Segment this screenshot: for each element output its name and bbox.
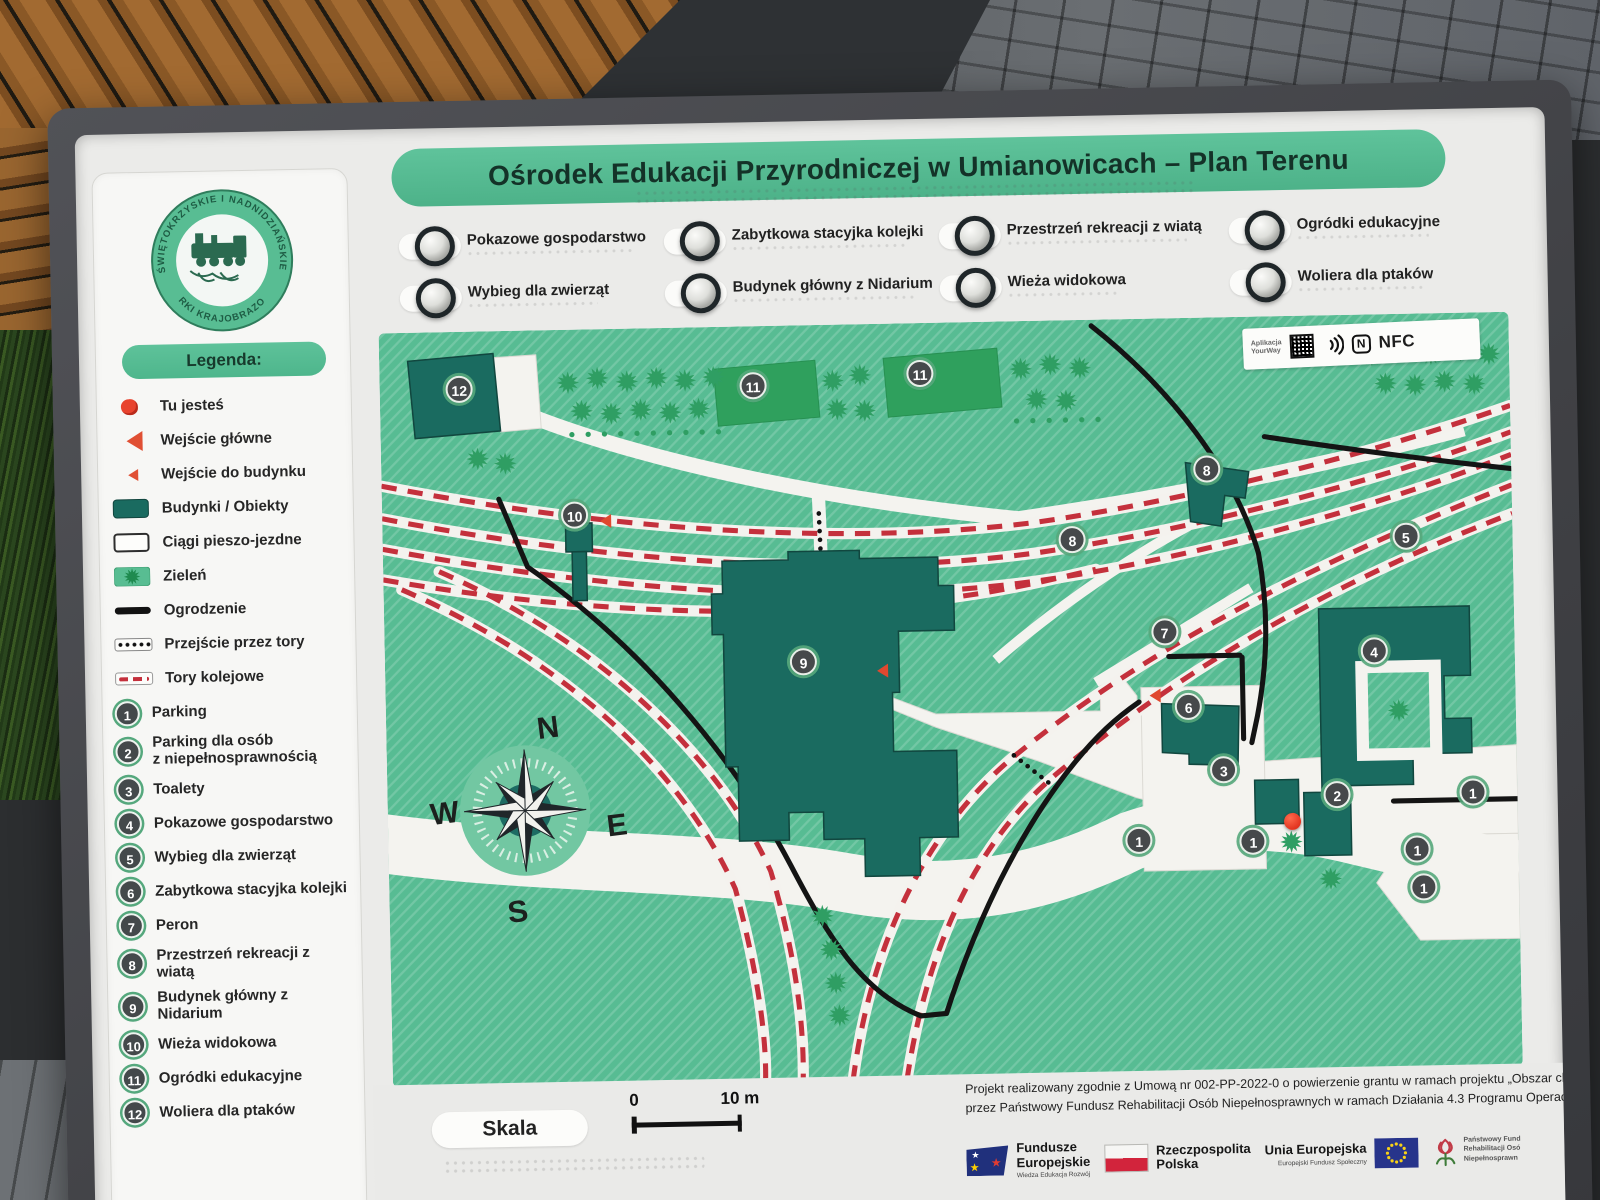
map-marker-10: 10 — [561, 501, 589, 529]
map-marker-8: 8 — [1193, 455, 1221, 483]
legend-item-label: Wejście główne — [160, 429, 272, 448]
audio-play-button[interactable] — [1245, 262, 1286, 303]
legend-panel: ŚWIĘTOKRZYSKIE I NADNIDZIAŃSKIE PARKI KR… — [91, 168, 367, 1200]
audio-item-2: Przestrzeń rekreacji z wiatą — [954, 208, 1245, 260]
legend-item-teal: Budynki / Obiekty — [111, 489, 344, 524]
legend-number-badge: 8 — [119, 951, 144, 976]
map-marker-12: 12 — [445, 375, 473, 403]
dotted-icon — [113, 638, 153, 652]
legend-number-label: Wieża widokowa — [158, 1033, 277, 1053]
audio-button-label: Wieża widokowa — [1007, 271, 1126, 301]
map-marker-11: 11 — [739, 372, 767, 400]
funding-logos: ★★★ FunduszeEuropejskie Wiedza Edukacja … — [966, 1115, 1565, 1196]
legend-number-label: Parking — [152, 703, 207, 721]
audio-item-5: Budynek główny z Nidarium — [680, 265, 956, 316]
audio-button-label: Pokazowe gospodarstwo — [467, 228, 647, 259]
legend-number-label: Toalety — [153, 780, 205, 798]
scale-label: Skala — [431, 1110, 588, 1149]
legend-number-item-10: 10Wieża widokowa — [121, 1028, 353, 1058]
legend-number-badge: 1 — [115, 701, 140, 726]
audio-play-button[interactable] — [414, 226, 455, 267]
legend-number-label: Ogródki edukacyjne — [159, 1067, 303, 1087]
legend-number-label: Wybieg dla zwierząt — [154, 846, 296, 866]
legend-header: Legenda: — [122, 341, 327, 379]
scale-start: 0 — [629, 1091, 639, 1111]
project-description: Projekt realizowany zgodnie z Umową nr 0… — [965, 1068, 1566, 1119]
legend-number-badge: 6 — [118, 879, 143, 904]
audio-button-label: Przestrzeń rekreacji z wiatą — [1006, 218, 1202, 250]
building-entrance-icon — [1143, 688, 1161, 702]
legend-item-red-dash: Tory kolejowe — [114, 659, 347, 694]
site-map: N W E S Aplikacja YourWay — [379, 312, 1523, 1088]
red-dot-icon — [109, 398, 149, 415]
audio-play-button[interactable] — [415, 278, 456, 319]
white-icon — [111, 533, 151, 553]
logo-pfron: Państwowy Fund Rehabilitacji Osó Niepełn… — [1432, 1135, 1521, 1169]
footer: Skala 0 10 m Projekt realizowany zgodnie… — [373, 1063, 1566, 1200]
you-are-here-dot — [1284, 813, 1301, 830]
legend-number-label: Peron — [156, 916, 199, 934]
map-markers: 1211111088597463211111 — [379, 312, 1523, 1088]
legend-item-label: Zieleń — [163, 567, 207, 585]
legend-number-badge: 7 — [119, 913, 144, 938]
map-marker-9: 9 — [790, 648, 818, 676]
map-marker-4: 4 — [1360, 637, 1388, 665]
information-board: ŚWIĘTOKRZYSKIE I NADNIDZIAŃSKIE PARKI KR… — [47, 79, 1593, 1200]
building-entrance-icon — [870, 664, 888, 678]
legend-number-label: Pokazowe gospodarstwo — [154, 811, 334, 832]
audio-button-label: Wybieg dla zwierząt — [468, 281, 610, 312]
legend-number-item-6: 6Zabytkowa stacyjka kolejki — [118, 875, 350, 905]
audio-item-3: Ogródki edukacyjne — [1244, 203, 1495, 254]
scale-bar-line — [632, 1121, 742, 1128]
legend-number-badge: 2 — [115, 739, 140, 764]
legend-item-black-line: Ogrodzenie — [113, 591, 346, 626]
tri-small-icon — [110, 468, 150, 481]
legend-number-label: Woliera dla ptaków — [159, 1101, 295, 1121]
legend-number-badge: 11 — [122, 1066, 147, 1091]
map-marker-11: 11 — [906, 360, 934, 388]
legend-number-item-9: 9Budynek główny z Nidarium — [120, 985, 353, 1024]
audio-item-1: Zabytkowa stacyjka kolejki — [679, 213, 955, 264]
legend-item-green-burst: Zieleń — [112, 557, 345, 592]
audio-buttons: Pokazowe gospodarstwoZabytkowa stacyjka … — [414, 200, 1508, 325]
audio-item-0: Pokazowe gospodarstwo — [414, 219, 680, 270]
map-marker-1: 1 — [1410, 873, 1438, 901]
legend-item-label: Wejście do budynku — [161, 463, 306, 483]
legend-number-badge: 10 — [121, 1032, 146, 1057]
legend-number-item-4: 4Pokazowe gospodarstwo — [117, 807, 349, 837]
map-marker-1: 1 — [1240, 827, 1268, 855]
map-marker-8: 8 — [1059, 526, 1087, 554]
photo-of-information-board: ŚWIĘTOKRZYSKIE I NADNIDZIAŃSKIE PARKI KR… — [0, 0, 1600, 1200]
legend-item-label: Tu jesteś — [160, 396, 224, 414]
legend-number-badge: 4 — [117, 811, 142, 836]
legend-item-label: Tory kolejowe — [165, 668, 264, 687]
audio-play-button[interactable] — [1244, 210, 1285, 251]
logo-unia-europejska: Unia Europejska Europejski Fundusz Społe… — [1265, 1138, 1419, 1171]
audio-button-label: Zabytkowa stacyjka kolejki — [732, 223, 924, 255]
legend-number-item-11: 11Ogródki edukacyjne — [122, 1062, 354, 1092]
legend-number-badge: 5 — [117, 845, 142, 870]
audio-play-button[interactable] — [954, 216, 995, 257]
map-marker-1: 1 — [1125, 827, 1153, 855]
audio-item-6: Wieża widokowa — [955, 260, 1246, 312]
braille-scale — [444, 1155, 704, 1174]
legend-item-red-dot: Tu jesteś — [109, 387, 342, 422]
map-marker-2: 2 — [1323, 781, 1351, 809]
legend-number-item-8: 8Przestrzeń rekreacji z wiatą — [119, 943, 352, 982]
audio-button-label: Budynek główny z Nidarium — [733, 275, 934, 307]
legend-item-label: Przejście przez tory — [164, 633, 304, 653]
legend-item-label: Ciągi pieszo-jezdne — [162, 531, 302, 551]
map-marker-3: 3 — [1210, 756, 1238, 784]
red-dash-icon — [114, 672, 154, 686]
legend-numbered-list: 1Parking2Parking dla osób z niepełnospra… — [115, 696, 355, 1126]
legend-number-item-7: 7Peron — [119, 909, 351, 939]
building-entrance-icon — [593, 513, 611, 527]
logo-rzeczpospolita-polska: RzeczpospolitaPolska — [1104, 1142, 1251, 1173]
legend-item-label: Ogrodzenie — [164, 600, 247, 619]
map-marker-7: 7 — [1151, 618, 1179, 646]
audio-button-label: Ogródki edukacyjne — [1296, 213, 1440, 244]
legend-item-tri-big: Wejście główne — [109, 421, 342, 456]
audio-item-4: Wybieg dla zwierząt — [415, 271, 681, 322]
green-burst-icon — [112, 567, 152, 587]
map-marker-5: 5 — [1392, 523, 1420, 551]
tulip-icon — [1432, 1136, 1459, 1168]
legend-item-white: Ciągi pieszo-jezdne — [111, 523, 344, 558]
legend-number-item-1: 1Parking — [115, 696, 347, 726]
legend-number-badge: 3 — [116, 777, 141, 802]
audio-play-button[interactable] — [679, 221, 720, 262]
map-marker-1: 1 — [1404, 836, 1432, 864]
tri-big-icon — [109, 430, 149, 451]
legend-number-item-2: 2Parking dla osób z niepełnosprawnością — [115, 730, 348, 769]
poland-flag-icon — [1104, 1144, 1149, 1173]
audio-item-7: Woliera dla ptaków — [1245, 255, 1496, 306]
teal-icon — [111, 499, 151, 519]
logo-fundusze-europejskie: ★★★ FunduszeEuropejskie Wiedza Edukacja … — [966, 1140, 1090, 1179]
legend-number-label: Zabytkowa stacyjka kolejki — [155, 879, 347, 900]
pfron-text: Państwowy Fund Rehabilitacji Osó Niepełn… — [1463, 1135, 1521, 1164]
board-panel: ŚWIĘTOKRZYSKIE I NADNIDZIAŃSKIE PARKI KR… — [75, 107, 1566, 1200]
scale-end: 10 m — [720, 1088, 759, 1109]
black-line-icon — [113, 607, 153, 615]
park-logo: ŚWIĘTOKRZYSKIE I NADNIDZIAŃSKIE PARKI KR… — [146, 184, 299, 337]
legend-number-label: Przestrzeń rekreacji z wiatą — [156, 943, 352, 981]
legend-item-dotted: Przejście przez tory — [113, 625, 346, 660]
legend-item-label: Budynki / Obiekty — [162, 497, 289, 517]
legend-number-item-3: 3Toalety — [116, 773, 348, 803]
audio-button-label: Woliera dla ptaków — [1297, 265, 1433, 296]
audio-play-button[interactable] — [955, 268, 996, 309]
scale-bar: 0 10 m — [631, 1088, 752, 1148]
legend-number-item-5: 5Wybieg dla zwierząt — [117, 841, 349, 871]
map-marker-6: 6 — [1175, 693, 1203, 721]
audio-play-button[interactable] — [680, 273, 721, 314]
legend-number-item-12: 12Woliera dla ptaków — [122, 1096, 354, 1126]
legend-number-badge: 9 — [120, 994, 145, 1019]
map-marker-1: 1 — [1459, 778, 1487, 806]
eu-flag-icon — [1374, 1138, 1419, 1169]
legend-number-label: Parking dla osób z niepełnosprawnością — [152, 731, 317, 769]
legend-symbol-list: Tu jesteśWejście główneWejście do budynk… — [109, 387, 347, 694]
legend-item-tri-small: Wejście do budynku — [110, 455, 343, 490]
legend-number-badge: 12 — [122, 1100, 147, 1125]
fe-flag-icon: ★★★ — [966, 1145, 1009, 1176]
legend-number-label: Budynek główny z Nidarium — [157, 985, 353, 1023]
